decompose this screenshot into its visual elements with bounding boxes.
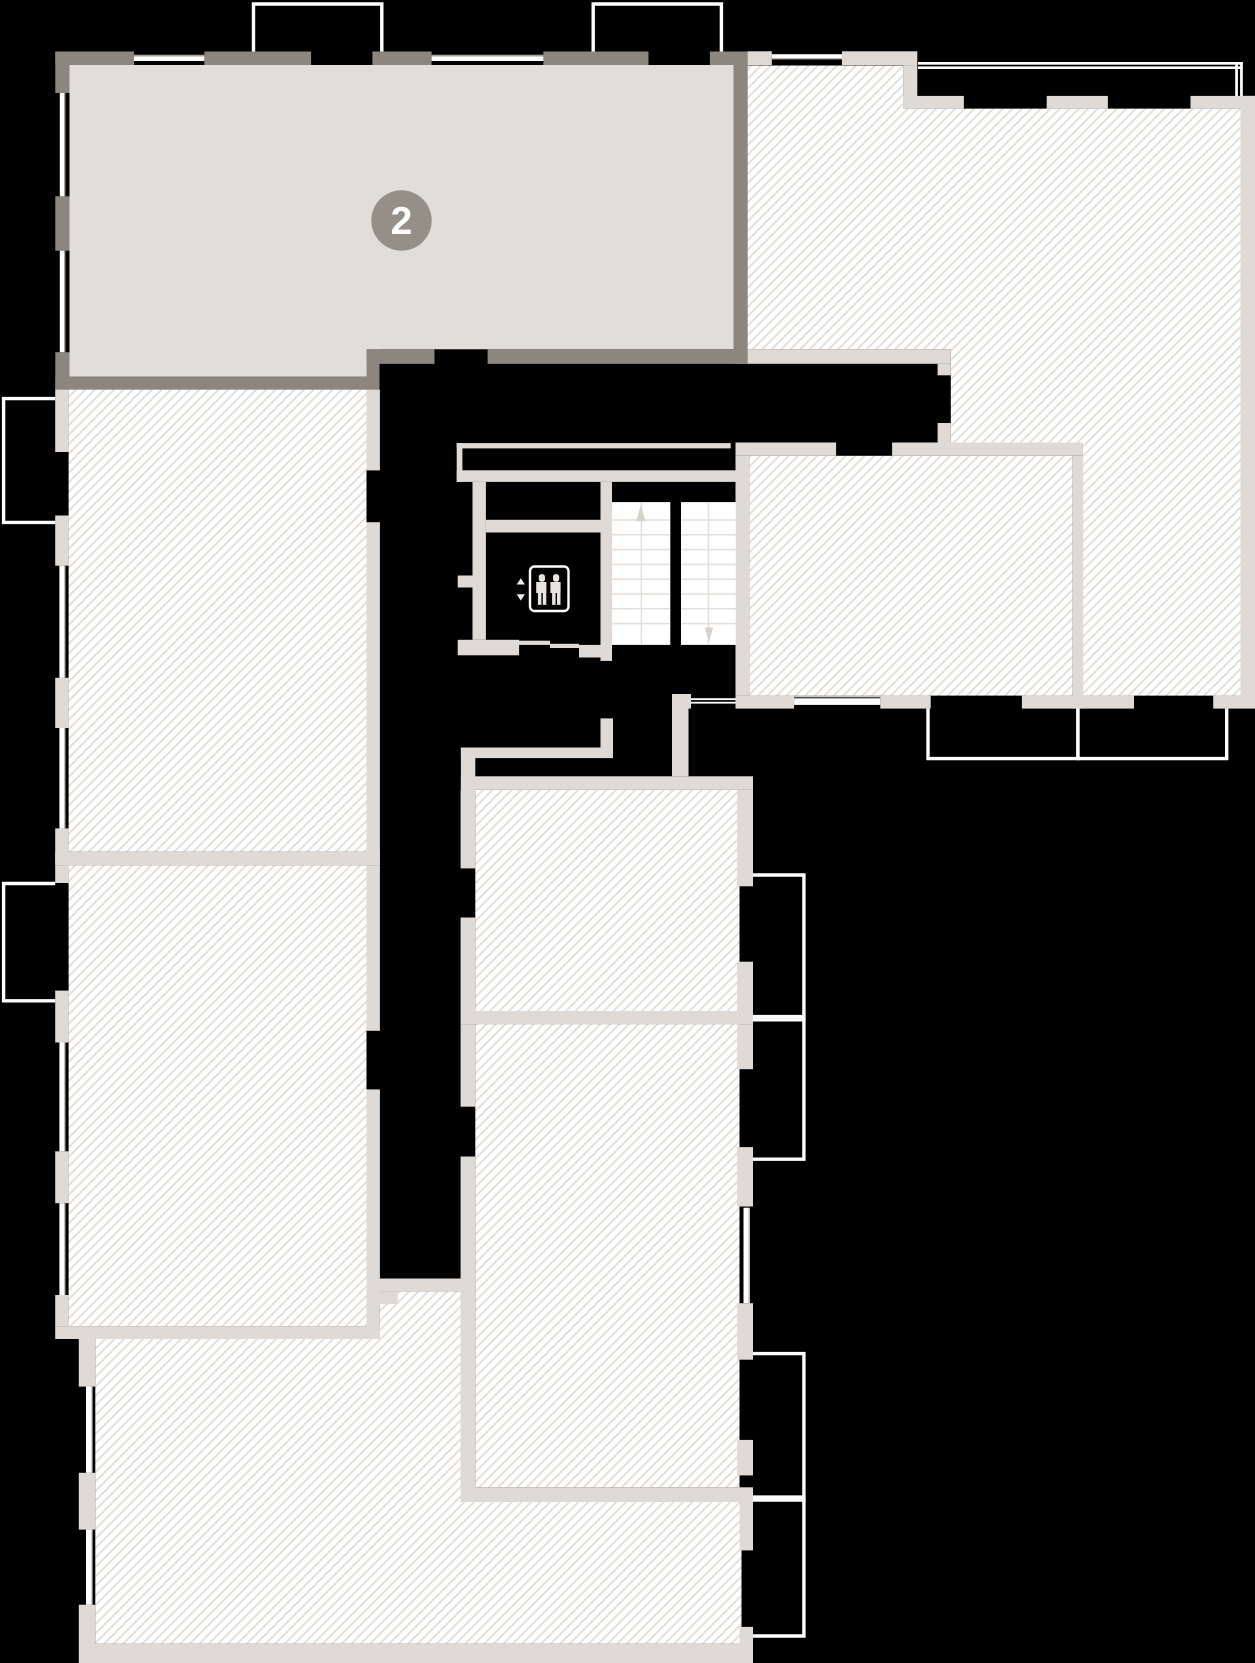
svg-text:2: 2: [391, 200, 413, 243]
